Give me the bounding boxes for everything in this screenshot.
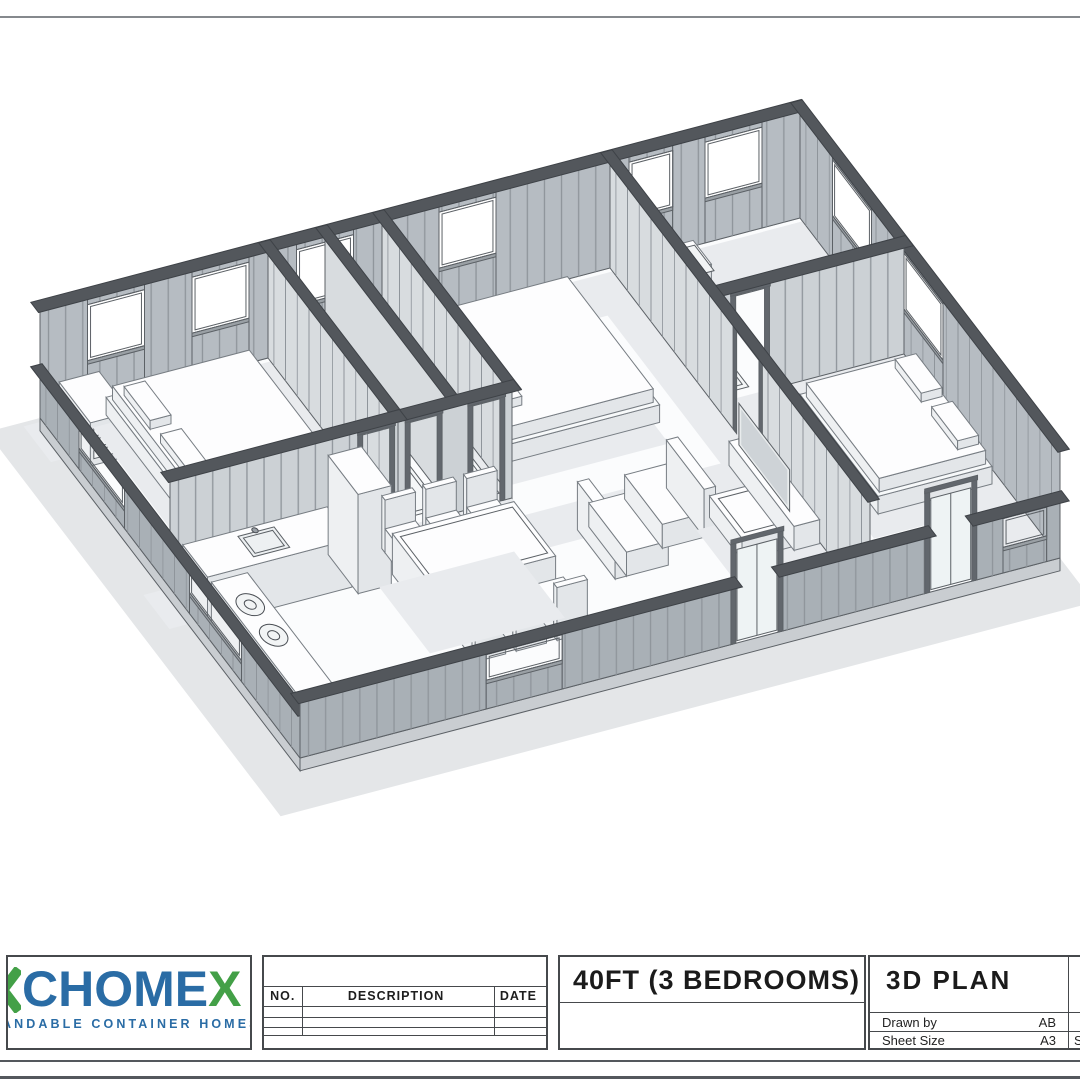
drawn-by-label: Drawn by [882,1015,937,1030]
partial-green-letter-icon [6,967,21,1013]
clipped-column-label: S [1074,1033,1080,1048]
drawing-sheet: CHOME X ANDABLE CONTAINER HOMES NO. DESC… [0,0,1080,1080]
brand-tagline: ANDABLE CONTAINER HOMES [6,1017,250,1031]
brand-text: CHOME [22,965,208,1013]
title-box-line [560,1002,864,1003]
revision-col-date: DATE [491,986,546,1006]
drawn-by-value: AB [1020,1015,1056,1030]
revision-table-line [264,1027,546,1028]
revision-col-no: NO. [264,986,301,1006]
view-box-line [870,1031,1080,1032]
revision-table-line [264,1017,546,1018]
view-box-divider [1068,957,1069,1048]
revision-table: NO. DESCRIPTION DATE [262,955,548,1050]
sheet-border-bottom-1 [0,1060,1080,1062]
sheet-size-label: Sheet Size [882,1033,945,1048]
company-logo-box: CHOME X ANDABLE CONTAINER HOMES [6,955,252,1050]
company-logo: CHOME X [6,965,250,1013]
drawing-title-box: 40FT (3 BEDROOMS) [558,955,866,1050]
sheet-border-bottom-2 [0,1076,1080,1079]
drawing-title: 40FT (3 BEDROOMS) [573,965,860,996]
revision-table-line [264,1006,546,1007]
revision-col-desc: DESCRIPTION [301,986,490,1006]
view-label: 3D PLAN [886,965,1011,996]
brand-accent-letter: X [208,965,241,1013]
sheet-size-value: A3 [1020,1033,1056,1048]
view-box-line [870,1012,1080,1013]
floor-plan-3d-view [0,18,1080,953]
view-info-box: 3D PLAN Drawn by AB Sheet Size A3 S [868,955,1080,1050]
plan-drawing-area [0,18,1080,953]
revision-table-line [264,1035,546,1036]
